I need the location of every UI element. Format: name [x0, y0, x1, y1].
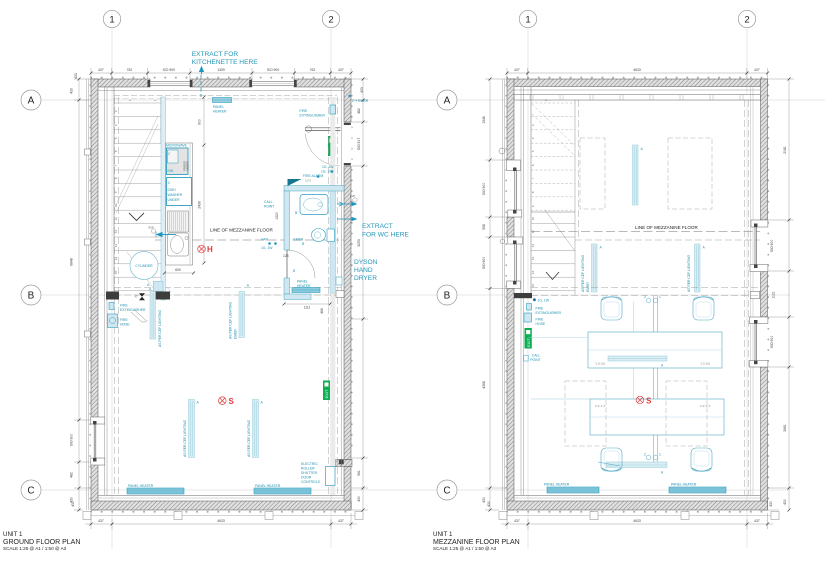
svg-text:EXTINGUISHER: EXTINGUISHER	[120, 308, 146, 312]
svg-text:430: 430	[71, 501, 75, 507]
svg-text:1946: 1946	[482, 116, 486, 124]
svg-text:S/O 900: S/O 900	[267, 68, 280, 72]
svg-text:AS PER CEF LIGHTING: AS PER CEF LIGHTING	[158, 310, 162, 347]
svg-text:FIRE: FIRE	[120, 304, 128, 308]
svg-text:FAN: FAN	[262, 238, 269, 242]
svg-text:A: A	[444, 96, 451, 107]
svg-text:MEZZANINE FLOOR PLAN: MEZZANINE FLOOR PLAN	[433, 539, 520, 546]
svg-text:1G, 1W: 1G, 1W	[322, 165, 334, 169]
svg-text:HOSE: HOSE	[120, 323, 130, 327]
svg-text:1309: 1309	[217, 68, 225, 72]
svg-text:UNDER: UNDER	[186, 161, 190, 171]
svg-text:437: 437	[514, 519, 520, 523]
svg-text:S/O 900: S/O 900	[70, 434, 74, 447]
svg-text:DRYER: DRYER	[354, 275, 377, 282]
svg-text:C + EMER: C + EMER	[352, 99, 369, 103]
svg-text:1: 1	[659, 453, 661, 457]
svg-text:1111: 1111	[304, 306, 311, 310]
svg-text:POINT: POINT	[530, 358, 540, 362]
svg-text:1: 1	[659, 295, 661, 299]
svg-text:762: 762	[310, 68, 316, 72]
svg-text:CYLINDER: CYLINDER	[135, 264, 153, 268]
svg-text:H: H	[207, 245, 213, 254]
svg-text:1G, 1W: 1G, 1W	[538, 299, 550, 303]
svg-text:1G, 1W: 1G, 1W	[261, 246, 273, 250]
svg-text:AS PER CEF LIGHTING: AS PER CEF LIGHTING	[183, 420, 187, 457]
svg-text:EXTRACT: EXTRACT	[362, 223, 393, 230]
svg-text:600: 600	[175, 268, 181, 272]
svg-text:900: 900	[198, 119, 202, 125]
svg-text:430: 430	[783, 499, 787, 505]
svg-text:437: 437	[98, 519, 104, 523]
svg-text:S: S	[229, 397, 235, 406]
svg-text:FIRE: FIRE	[536, 307, 544, 311]
svg-text:EMER: EMER	[294, 238, 304, 242]
svg-text:UNIT 1: UNIT 1	[433, 531, 453, 538]
svg-text:S/O 900: S/O 900	[770, 336, 774, 349]
svg-text:UNIT 1: UNIT 1	[3, 531, 23, 538]
svg-text:437: 437	[338, 519, 344, 523]
svg-text:FIRE ALARM: FIRE ALARM	[303, 174, 323, 178]
svg-text:S/O 900: S/O 900	[482, 183, 486, 196]
svg-text:CALL: CALL	[532, 354, 541, 358]
svg-text:C: C	[443, 486, 450, 497]
svg-text:AS PER CEF LIGHTING: AS PER CEF LIGHTING	[229, 302, 233, 339]
svg-text:437: 437	[514, 68, 520, 72]
svg-text:AS PER CEF LIGHTING: AS PER CEF LIGHTING	[687, 255, 691, 292]
svg-text:561: 561	[357, 470, 361, 476]
svg-text:FIRE: FIRE	[300, 109, 308, 113]
svg-text:FIRE: FIRE	[536, 318, 544, 322]
svg-text:PANEL HEATER: PANEL HEATER	[544, 483, 570, 487]
svg-text:FOR WC HERE: FOR WC HERE	[362, 232, 409, 239]
svg-text:B: B	[444, 291, 451, 302]
svg-text:MICROWAVE: MICROWAVE	[166, 144, 188, 148]
svg-text:HOSE: HOSE	[536, 322, 546, 326]
svg-text:482: 482	[357, 108, 361, 114]
svg-text:UNDER: UNDER	[168, 198, 181, 202]
svg-text:HEATER: HEATER	[213, 109, 227, 113]
svg-text:2436: 2436	[198, 201, 202, 209]
svg-text:EVP: EVP	[149, 226, 154, 230]
svg-text:PANEL: PANEL	[213, 105, 224, 109]
svg-text:430: 430	[482, 497, 486, 503]
svg-text:EXTRACT FOR: EXTRACT FOR	[192, 51, 239, 58]
svg-text:4633: 4633	[633, 68, 641, 72]
svg-text:FIRE: FIRE	[120, 318, 128, 322]
svg-text:6848: 6848	[70, 258, 74, 266]
svg-text:HAND: HAND	[354, 267, 373, 274]
svg-text:4633: 4633	[633, 519, 641, 523]
svg-text:DYSON: DYSON	[354, 259, 378, 266]
svg-text:WASHER: WASHER	[168, 193, 183, 197]
svg-text:CONTROLS: CONTROLS	[301, 480, 321, 484]
svg-text:2661: 2661	[783, 424, 787, 432]
svg-text:430: 430	[357, 496, 361, 502]
svg-text:EXIT: EXIT	[526, 338, 531, 347]
svg-text:482: 482	[70, 472, 74, 478]
svg-text:2081: 2081	[783, 146, 787, 154]
svg-text:EMER: EMER	[586, 282, 590, 292]
svg-text:DISH: DISH	[168, 188, 177, 192]
svg-text:2'-1" 2'-1": 2'-1" 2'-1"	[595, 405, 606, 408]
svg-text:C: C	[27, 486, 34, 497]
svg-text:LINE OF MEZZANINE FLOOR: LINE OF MEZZANINE FLOOR	[210, 228, 273, 233]
svg-text:EVP: EVP	[350, 194, 355, 198]
svg-text:1173: 1173	[305, 179, 311, 183]
svg-text:437: 437	[754, 68, 760, 72]
svg-text:⌜1.8 1.8⌋: ⌜1.8 1.8⌋	[700, 362, 710, 366]
svg-text:430: 430	[487, 501, 491, 507]
svg-text:EXTINGUISHER: EXTINGUISHER	[536, 311, 562, 315]
svg-text:EXTINGUISHER: EXTINGUISHER	[300, 114, 326, 118]
svg-text:SCALE 1:25 @ A1 / 1:50 @ A3: SCALE 1:25 @ A1 / 1:50 @ A3	[3, 546, 67, 551]
svg-text:⌜1.8 1.8⌋: ⌜1.8 1.8⌋	[595, 362, 605, 366]
svg-text:466: 466	[320, 308, 324, 314]
svg-text:EXIT: EXIT	[324, 389, 329, 398]
svg-text:S/O 900: S/O 900	[770, 240, 774, 253]
svg-text:762: 762	[127, 68, 133, 72]
svg-text:S: S	[646, 397, 652, 406]
svg-text:558: 558	[482, 224, 486, 230]
svg-text:4368: 4368	[482, 381, 486, 389]
svg-text:S/O 900: S/O 900	[163, 68, 176, 72]
svg-text:433: 433	[360, 87, 364, 93]
svg-text:EMER: EMER	[234, 329, 238, 339]
svg-text:2: 2	[168, 181, 170, 185]
svg-text:S/O 900: S/O 900	[482, 257, 486, 270]
svg-text:126: 126	[283, 254, 289, 258]
svg-text:433: 433	[70, 88, 74, 94]
svg-text:PANEL HEATER: PANEL HEATER	[128, 484, 154, 488]
svg-text:437: 437	[98, 68, 104, 72]
svg-text:B: B	[28, 291, 35, 302]
svg-text:GROUND FLOOR PLAN: GROUND FLOOR PLAN	[3, 539, 80, 546]
svg-text:2: 2	[744, 14, 749, 25]
svg-text:CALL: CALL	[264, 200, 273, 204]
svg-text:DW: DW	[168, 169, 174, 173]
svg-text:AS PER CEF LIGHTING: AS PER CEF LIGHTING	[247, 420, 251, 457]
svg-text:KITCHENETTE HERE: KITCHENETTE HERE	[192, 59, 259, 66]
svg-text:1: 1	[525, 14, 530, 25]
svg-text:PANEL HEATER: PANEL HEATER	[255, 484, 281, 488]
svg-text:1121: 1121	[772, 291, 776, 298]
svg-text:2: 2	[644, 453, 646, 457]
svg-text:437: 437	[754, 519, 760, 523]
svg-text:LINE OF MEZZANINE FLOOR: LINE OF MEZZANINE FLOOR	[635, 225, 698, 230]
svg-text:DOOR: DOOR	[301, 476, 312, 480]
svg-text:437: 437	[338, 68, 344, 72]
svg-text:S/O 917: S/O 917	[357, 138, 361, 151]
svg-text:1: 1	[109, 14, 114, 25]
svg-text:430: 430	[769, 501, 773, 507]
svg-text:2'-1" 2'-1": 2'-1" 2'-1"	[700, 405, 711, 408]
svg-text:AS PER CEF LIGHTING: AS PER CEF LIGHTING	[581, 255, 585, 292]
svg-text:1320: 1320	[275, 212, 279, 220]
svg-text:A: A	[28, 96, 35, 107]
svg-text:2: 2	[328, 14, 333, 25]
svg-text:POINT: POINT	[264, 205, 274, 209]
svg-text:ELECTRIC: ELECTRIC	[301, 462, 318, 466]
svg-text:SHUTTER: SHUTTER	[301, 471, 318, 475]
svg-text:433: 433	[74, 73, 78, 79]
svg-text:3253: 3253	[357, 239, 361, 247]
svg-text:PANEL HEATER: PANEL HEATER	[671, 483, 697, 487]
svg-text:4633: 4633	[217, 519, 225, 523]
svg-text:SCALE 1:25 @ A1 / 1:50 @ A3: SCALE 1:25 @ A1 / 1:50 @ A3	[433, 546, 497, 551]
svg-text:2: 2	[168, 152, 170, 156]
svg-text:PANEL: PANEL	[297, 280, 308, 284]
svg-text:ROLLER: ROLLER	[301, 467, 315, 471]
